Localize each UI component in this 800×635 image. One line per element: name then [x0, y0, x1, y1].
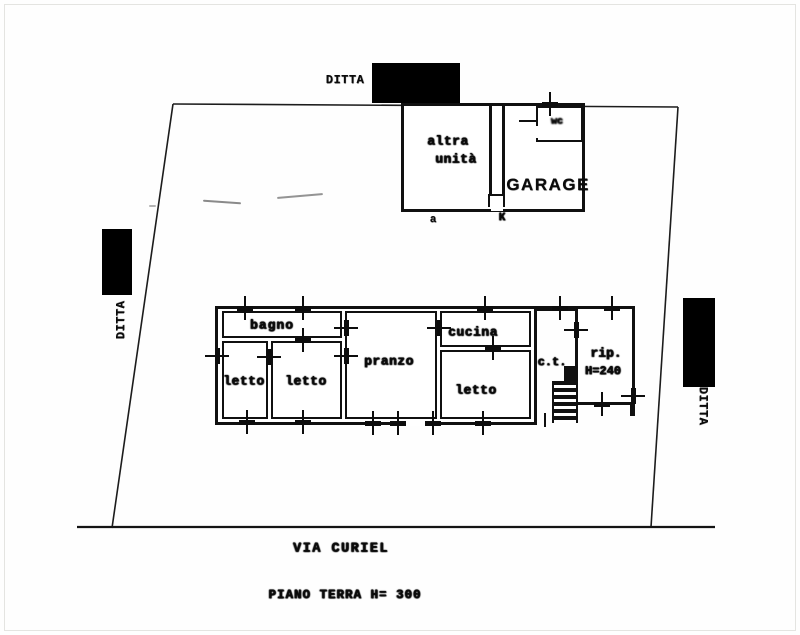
corridor-wall-left	[489, 106, 492, 197]
room-label-garage: GARAGE	[506, 175, 590, 195]
room-label-wc: wc	[551, 117, 563, 128]
room-label-letto-1: letto	[223, 374, 265, 389]
plan-mark-k: K	[499, 212, 506, 224]
street-label: VIA CURIEL	[293, 542, 389, 557]
right-wall-stub	[630, 402, 635, 416]
staircase	[552, 381, 578, 423]
room-label-bagno: bagno	[250, 318, 294, 333]
entry-wall-tick	[544, 413, 546, 427]
room-label-ct: c.t.	[538, 355, 567, 369]
redaction-box-right	[683, 298, 715, 387]
scan-smear	[149, 205, 156, 207]
room-label-cucina: cucina	[448, 325, 498, 340]
owner-label-right: DITTA	[696, 387, 710, 426]
owner-label-left: DITTA	[114, 301, 128, 340]
room-label-altra-unita-2: unità	[435, 152, 477, 167]
redaction-box-left	[102, 229, 132, 295]
plan-mark-a: a	[430, 214, 437, 226]
owner-label-top: DITTA	[326, 73, 365, 87]
wc-door-gap	[534, 126, 539, 138]
wc-wall-tick	[519, 120, 537, 122]
redaction-box-top	[372, 63, 460, 103]
room-label-rip: rip.	[590, 346, 621, 361]
room-label-letto-2: letto	[285, 374, 327, 389]
room-label-pranzo: pranzo	[364, 354, 414, 369]
floor-plan-scan: altra unità GARAGE wc a K bagno letto le…	[0, 0, 800, 635]
room-label-letto-3: letto	[455, 383, 497, 398]
room-label-rip-height: H=240	[585, 364, 621, 378]
corridor-door-gap	[491, 206, 503, 211]
room-label-altra-unita-1: altra	[427, 134, 469, 149]
corridor-wall-right	[502, 106, 505, 197]
plan-caption: PIANO TERRA H= 300	[268, 588, 421, 602]
